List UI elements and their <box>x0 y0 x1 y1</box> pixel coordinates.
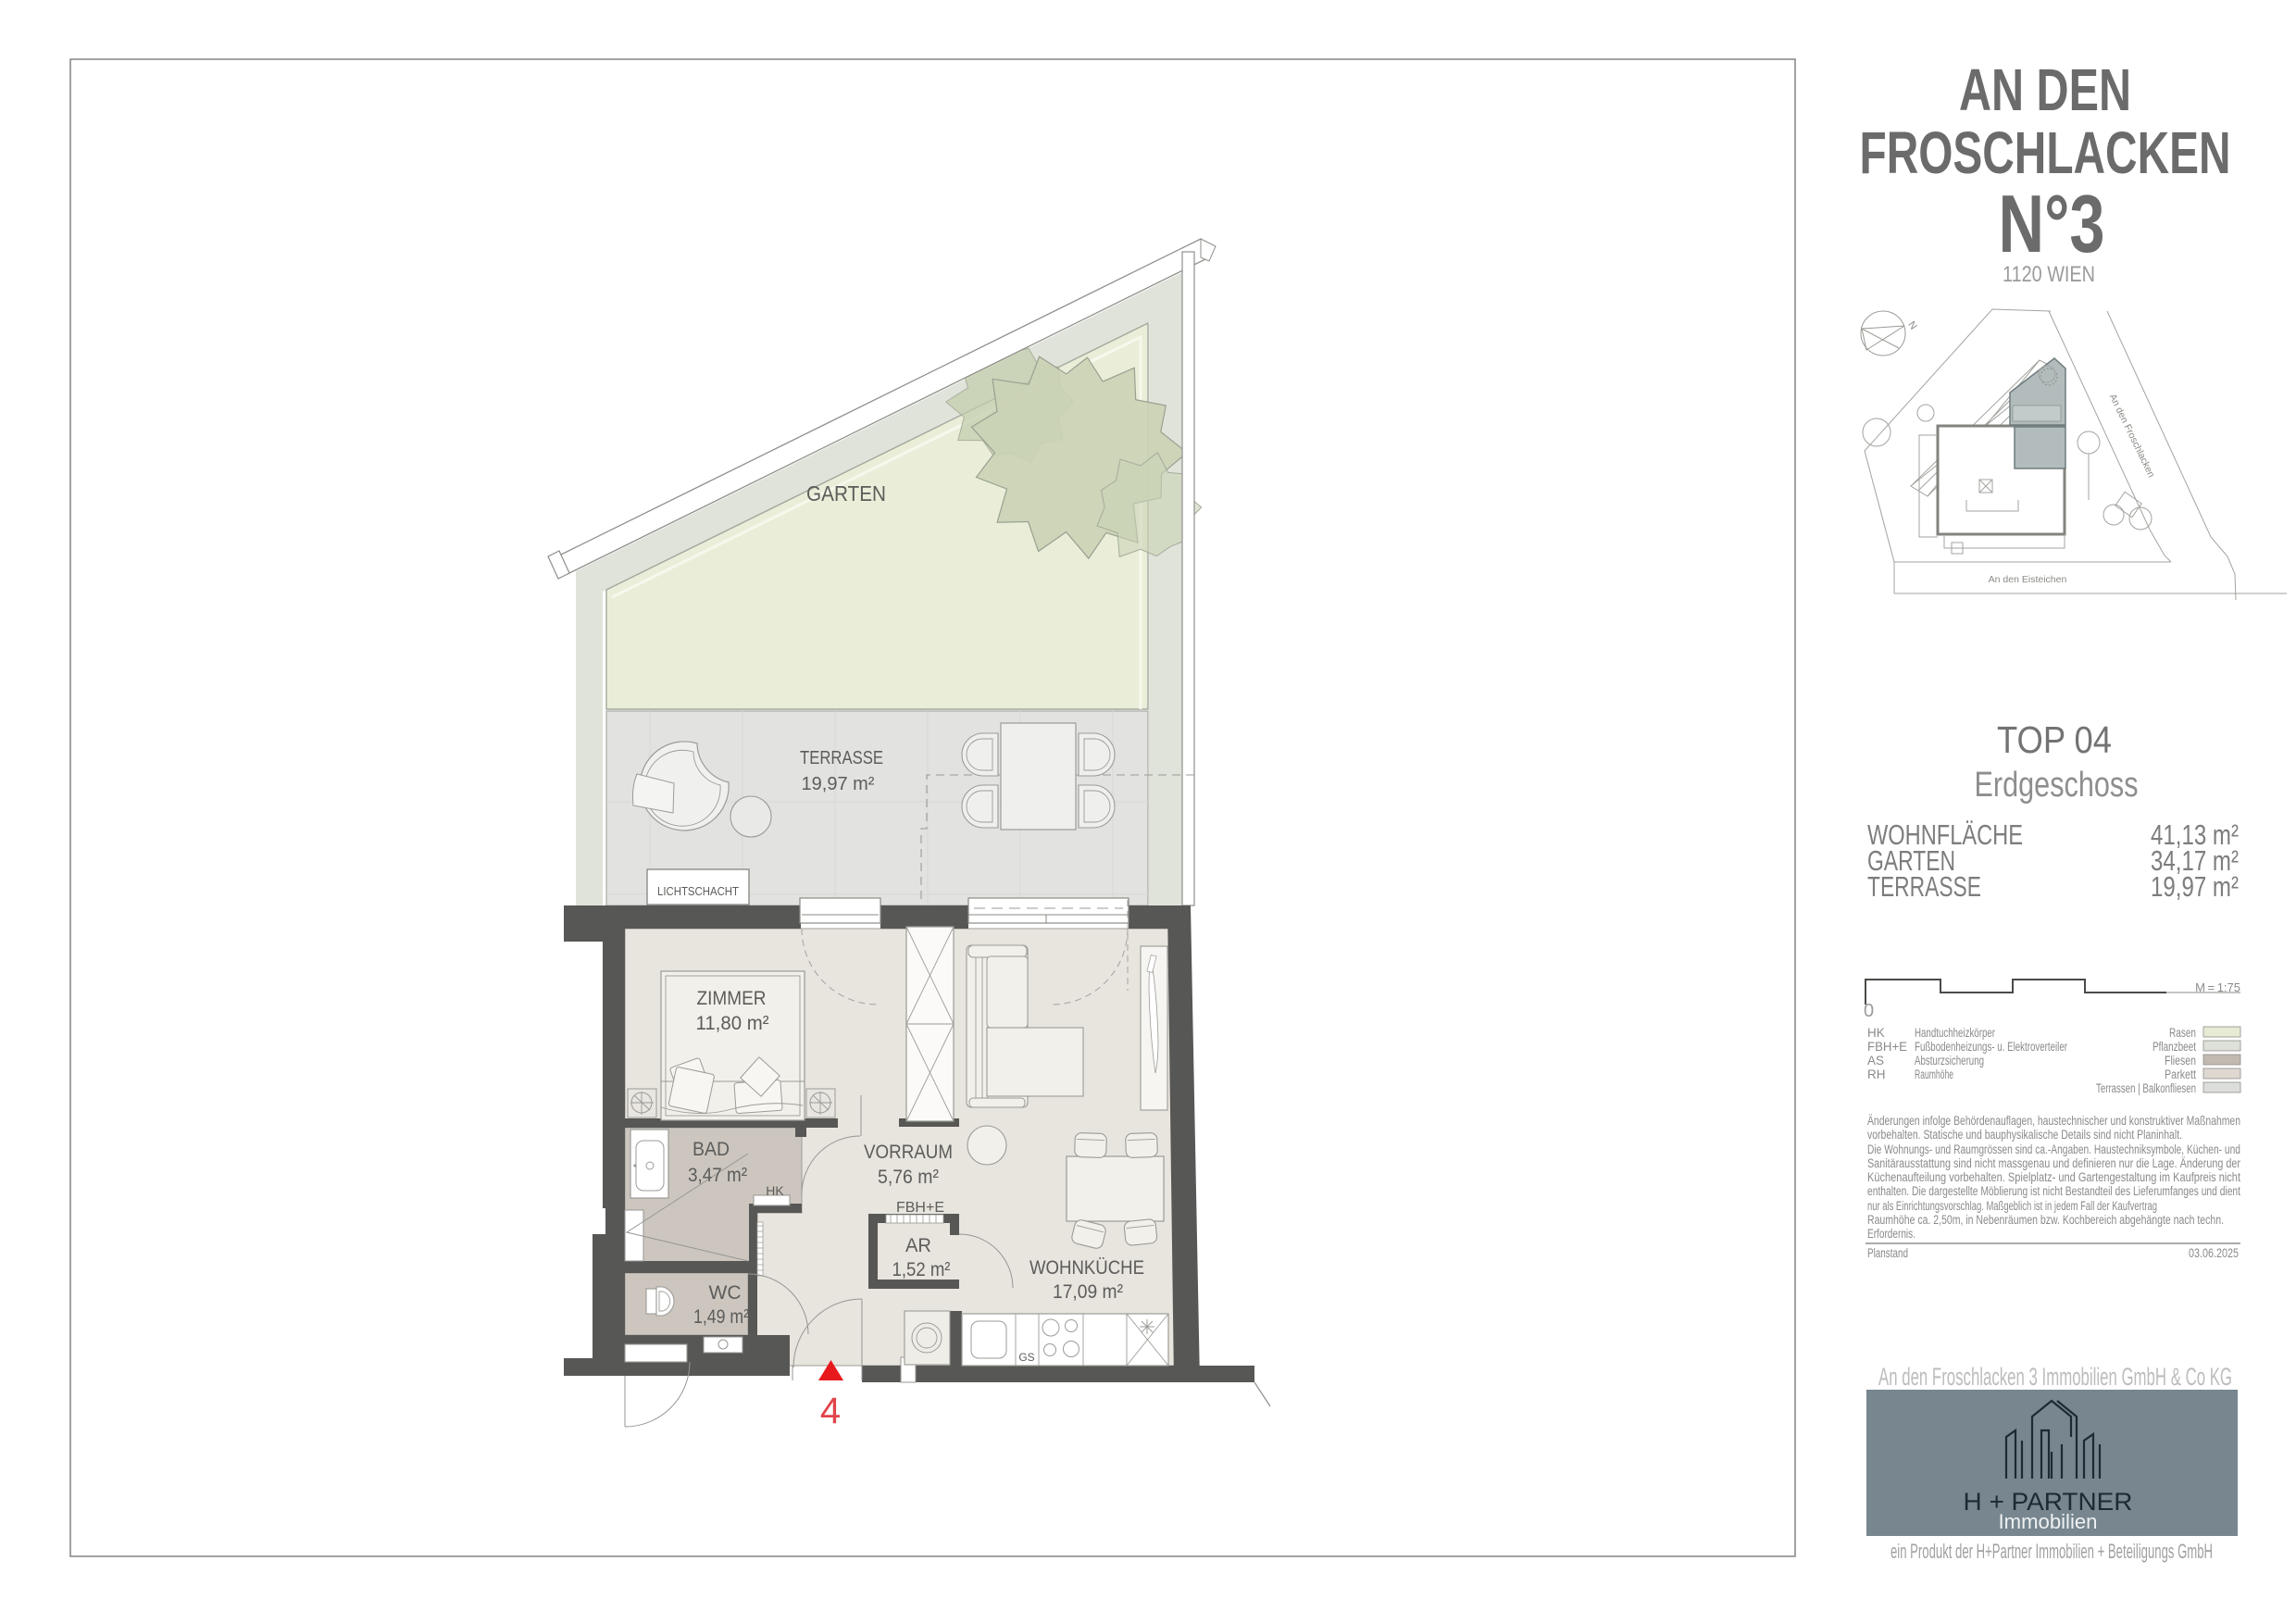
svg-text:BAD: BAD <box>693 1139 730 1160</box>
svg-text:HK: HK <box>766 1183 784 1198</box>
svg-text:LICHTSCHACHT: LICHTSCHACHT <box>657 885 739 898</box>
svg-text:1120 WIEN: 1120 WIEN <box>2003 262 2095 287</box>
svg-text:FBH+E: FBH+E <box>896 1200 944 1216</box>
svg-text:M = 1:75: M = 1:75 <box>2195 980 2240 994</box>
svg-text:Parkett: Parkett <box>2165 1067 2196 1081</box>
svg-text:vorbehalten. Statische und bau: vorbehalten. Statische und bauphysikalis… <box>1867 1128 2182 1142</box>
svg-text:Terrassen | Balkonfliesen: Terrassen | Balkonfliesen <box>2096 1081 2196 1095</box>
svg-text:Fußbodenheizungs- u. Elektrove: Fußbodenheizungs- u. Elektroverteiler <box>1915 1040 2067 1054</box>
svg-text:Küchenaufteilung vorbehalten.: Küchenaufteilung vorbehalten. Spielplatz… <box>1867 1170 2240 1184</box>
svg-text:ein Produkt der H+Partner Immo: ein Produkt der H+Partner Immobilien + B… <box>1890 1540 2213 1563</box>
svg-text:4: 4 <box>820 1391 841 1431</box>
svg-text:GS: GS <box>1018 1351 1034 1364</box>
svg-text:FROSCHLACKEN: FROSCHLACKEN <box>1860 119 2231 186</box>
svg-text:AS: AS <box>1867 1054 1884 1067</box>
svg-text:nur als Einrichtungsvorschlag.: nur als Einrichtungsvorschlag. Maßgeblic… <box>1867 1199 2157 1213</box>
svg-text:Pflanzbeet: Pflanzbeet <box>2152 1040 2196 1054</box>
svg-text:19,97 m²: 19,97 m² <box>2151 870 2239 903</box>
svg-text:Raumhöhe ca. 2,50m, in Nebenrä: Raumhöhe ca. 2,50m, in Nebenräumen bzw. … <box>1867 1213 2224 1227</box>
svg-text:Immobilien: Immobilien <box>1999 1510 2098 1533</box>
svg-text:11,80 m²: 11,80 m² <box>696 1013 769 1034</box>
svg-text:19,97 m²: 19,97 m² <box>802 774 875 794</box>
svg-text:An den Froschlacken 3 Immobili: An den Froschlacken 3 Immobilien GmbH & … <box>1878 1363 2232 1391</box>
svg-text:GARTEN: GARTEN <box>806 481 886 506</box>
svg-text:FBH+E: FBH+E <box>1867 1040 1907 1054</box>
svg-text:Planstand: Planstand <box>1867 1246 1908 1260</box>
svg-text:Die Wohnungs- und Raumgrössen: Die Wohnungs- und Raumgrössen sind ca.-A… <box>1867 1142 2240 1156</box>
svg-text:HK: HK <box>1867 1026 1885 1040</box>
svg-text:TERRASSE: TERRASSE <box>1867 870 1981 903</box>
svg-text:03.06.2025: 03.06.2025 <box>2189 1246 2239 1260</box>
svg-text:Handtuchheizkörper: Handtuchheizkörper <box>1915 1026 1995 1040</box>
svg-text:AR: AR <box>905 1235 931 1256</box>
svg-text:Erfordernis.: Erfordernis. <box>1867 1227 1915 1241</box>
svg-text:N°3: N°3 <box>1999 178 2105 269</box>
svg-text:Absturzsicherung: Absturzsicherung <box>1915 1054 1984 1067</box>
svg-text:0: 0 <box>1864 1001 1874 1021</box>
svg-text:Sanitärausstattung sind nicht: Sanitärausstattung sind nicht massgenau … <box>1867 1156 2240 1170</box>
svg-text:Änderungen infolge Behördenauf: Änderungen infolge Behördenauflagen, hau… <box>1867 1114 2240 1128</box>
svg-text:An den Eisteichen: An den Eisteichen <box>1989 574 2067 585</box>
svg-text:WOHNKÜCHE: WOHNKÜCHE <box>1029 1257 1144 1279</box>
svg-text:AN DEN: AN DEN <box>1959 56 2131 123</box>
svg-text:1,49 m²: 1,49 m² <box>693 1306 749 1328</box>
svg-text:5,76 m²: 5,76 m² <box>878 1167 939 1188</box>
svg-text:RH: RH <box>1867 1067 1886 1081</box>
svg-text:TERRASSE: TERRASSE <box>800 748 883 768</box>
svg-text:N: N <box>1905 319 1918 331</box>
svg-text:TOP 04: TOP 04 <box>1997 718 2112 761</box>
svg-text:Erdgeschoss: Erdgeschoss <box>1975 766 2139 805</box>
svg-text:Rasen: Rasen <box>2169 1026 2196 1040</box>
svg-text:Raumhöhe: Raumhöhe <box>1915 1067 1953 1081</box>
svg-text:Fliesen: Fliesen <box>2165 1054 2196 1067</box>
svg-text:1,52 m²: 1,52 m² <box>892 1259 951 1280</box>
svg-text:ZIMMER: ZIMMER <box>697 988 767 1009</box>
svg-text:VORRAUM: VORRAUM <box>864 1142 953 1163</box>
svg-text:17,09 m²: 17,09 m² <box>1053 1281 1123 1303</box>
svg-text:enthalten. Die dargestellte Mö: enthalten. Die dargestellte Möblierung i… <box>1867 1184 2240 1198</box>
svg-text:WC: WC <box>709 1282 742 1304</box>
svg-text:An den Froschlacken: An den Froschlacken <box>2107 393 2157 480</box>
svg-text:3,47 m²: 3,47 m² <box>688 1165 747 1186</box>
